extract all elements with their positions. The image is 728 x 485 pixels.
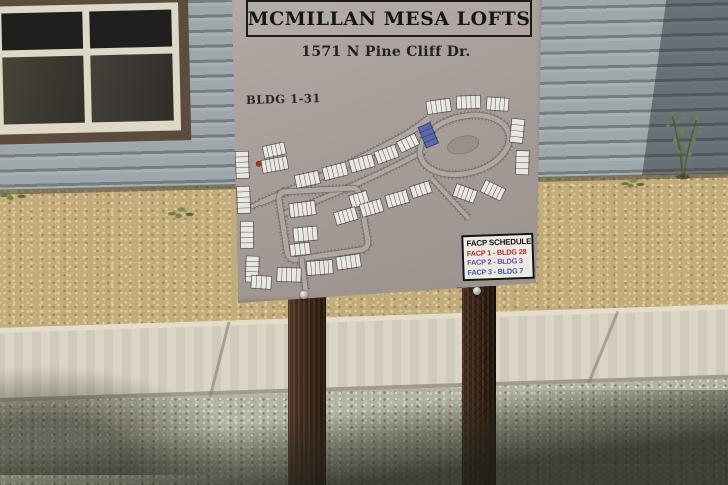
weed-patch <box>0 186 28 202</box>
window-pane <box>90 54 174 123</box>
map-island <box>446 133 481 157</box>
bolt-icon <box>473 287 481 295</box>
weed-patch <box>618 176 646 189</box>
map-building <box>293 225 318 244</box>
red-marker <box>256 161 261 166</box>
map-building <box>426 97 452 116</box>
map-building <box>234 151 250 179</box>
map-building <box>409 180 432 200</box>
window-pane <box>89 10 172 49</box>
sign-title-box: MCMILLAN MESA LOFTS <box>246 0 532 37</box>
map-building <box>239 221 254 248</box>
map-building <box>384 189 409 210</box>
map-building <box>322 161 349 182</box>
map-building <box>235 186 251 214</box>
map-building <box>456 94 481 110</box>
map-building <box>514 150 530 174</box>
window <box>0 0 191 145</box>
photo-scene: MCMILLAN MESA LOFTS 1571 N Pine Cliff Dr… <box>0 0 728 485</box>
facp-row: FACP 3 - BLDG 7 <box>467 265 529 277</box>
map-building <box>251 274 272 291</box>
window-pane <box>2 56 85 125</box>
facp-schedule-box: FACP SCHEDULE FACP 1 - BLDG 28FACP 2 - B… <box>461 233 535 281</box>
map-building <box>486 96 509 113</box>
facp-rows: FACP 1 - BLDG 28FACP 2 - BLDG 3FACP 3 - … <box>467 246 530 277</box>
weed-patch <box>164 204 196 220</box>
sign-title: MCMILLAN MESA LOFTS <box>248 8 531 30</box>
directory-sign-panel: MCMILLAN MESA LOFTS 1571 N Pine Cliff Dr… <box>228 0 544 304</box>
window-pane <box>1 12 83 51</box>
map-building <box>333 206 358 227</box>
map-building <box>277 266 302 283</box>
sign-shadow <box>0 390 728 485</box>
sapling <box>648 98 718 180</box>
sign-address: 1571 N Pine Cliff Dr. <box>228 44 544 60</box>
bolt-icon <box>300 291 308 299</box>
map-building <box>289 199 317 219</box>
window-frame <box>0 2 181 134</box>
map-building <box>306 258 333 276</box>
map-building <box>480 179 507 202</box>
sidewalk-joint <box>588 311 620 383</box>
map-building <box>508 118 526 143</box>
